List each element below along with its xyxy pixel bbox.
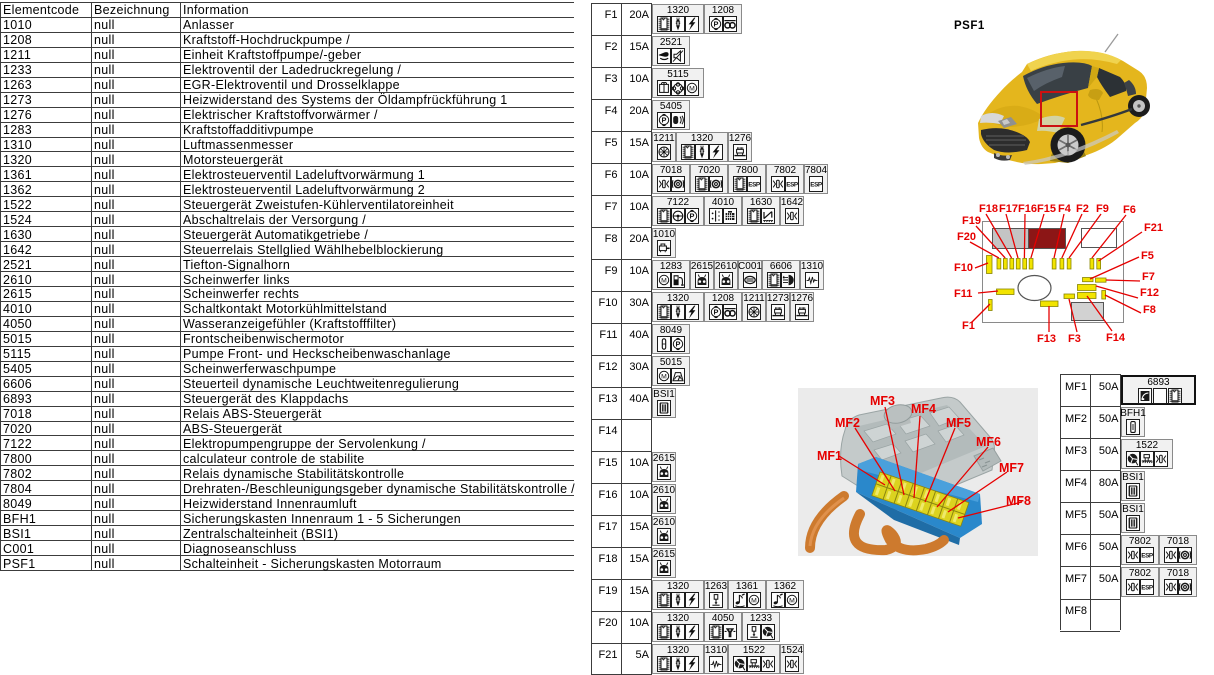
svg-text:F18: F18 <box>979 203 998 215</box>
svg-text:F19: F19 <box>962 215 981 227</box>
svg-text:MF8: MF8 <box>1006 494 1031 508</box>
svg-text:F11: F11 <box>954 288 972 300</box>
svg-text:F14: F14 <box>1106 332 1126 344</box>
svg-text:F8: F8 <box>1143 304 1156 316</box>
svg-text:F21: F21 <box>1144 222 1163 234</box>
svg-text:F10: F10 <box>954 262 973 274</box>
svg-text:MF7: MF7 <box>999 461 1024 475</box>
svg-text:MF5: MF5 <box>946 416 971 430</box>
svg-text:F1: F1 <box>962 320 975 332</box>
svg-text:F4: F4 <box>1058 203 1072 215</box>
svg-text:F9: F9 <box>1096 203 1109 215</box>
svg-text:MF3: MF3 <box>870 394 895 408</box>
svg-text:F13: F13 <box>1037 333 1056 345</box>
svg-text:MF2: MF2 <box>835 416 860 430</box>
svg-text:F20: F20 <box>957 231 976 243</box>
svg-text:F2: F2 <box>1076 203 1089 215</box>
svg-text:F3: F3 <box>1068 333 1081 345</box>
svg-text:F6: F6 <box>1123 204 1136 216</box>
svg-text:F15: F15 <box>1037 203 1056 215</box>
svg-text:MF6: MF6 <box>976 435 1001 449</box>
svg-text:F17: F17 <box>999 203 1018 215</box>
svg-text:F7: F7 <box>1142 271 1155 283</box>
svg-text:F16: F16 <box>1018 203 1037 215</box>
svg-text:MF4: MF4 <box>911 402 936 416</box>
svg-text:F5: F5 <box>1141 250 1154 262</box>
svg-text:F12: F12 <box>1140 287 1159 299</box>
svg-text:MF1: MF1 <box>817 449 842 463</box>
